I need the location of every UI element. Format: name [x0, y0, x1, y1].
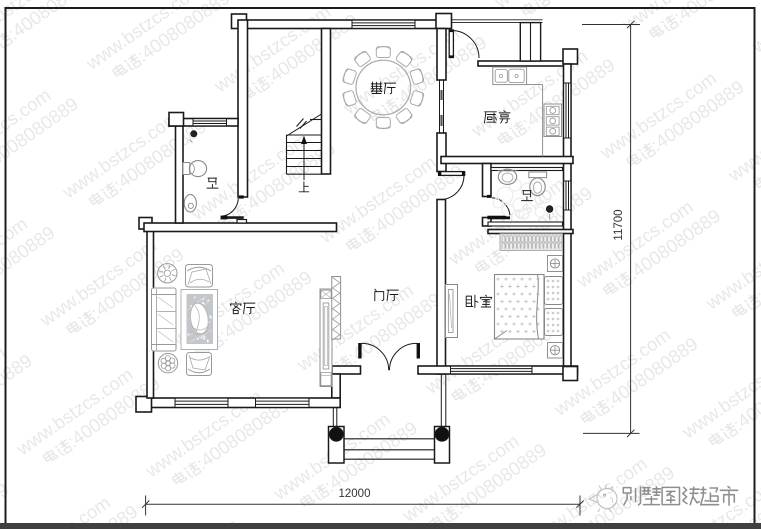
svg-text::4008080889: :4008080889 — [542, 0, 643, 5]
svg-text::4008080889: :4008080889 — [670, 0, 761, 27]
svg-text:12000: 12000 — [339, 488, 371, 500]
svg-text:11700: 11700 — [613, 209, 625, 240]
